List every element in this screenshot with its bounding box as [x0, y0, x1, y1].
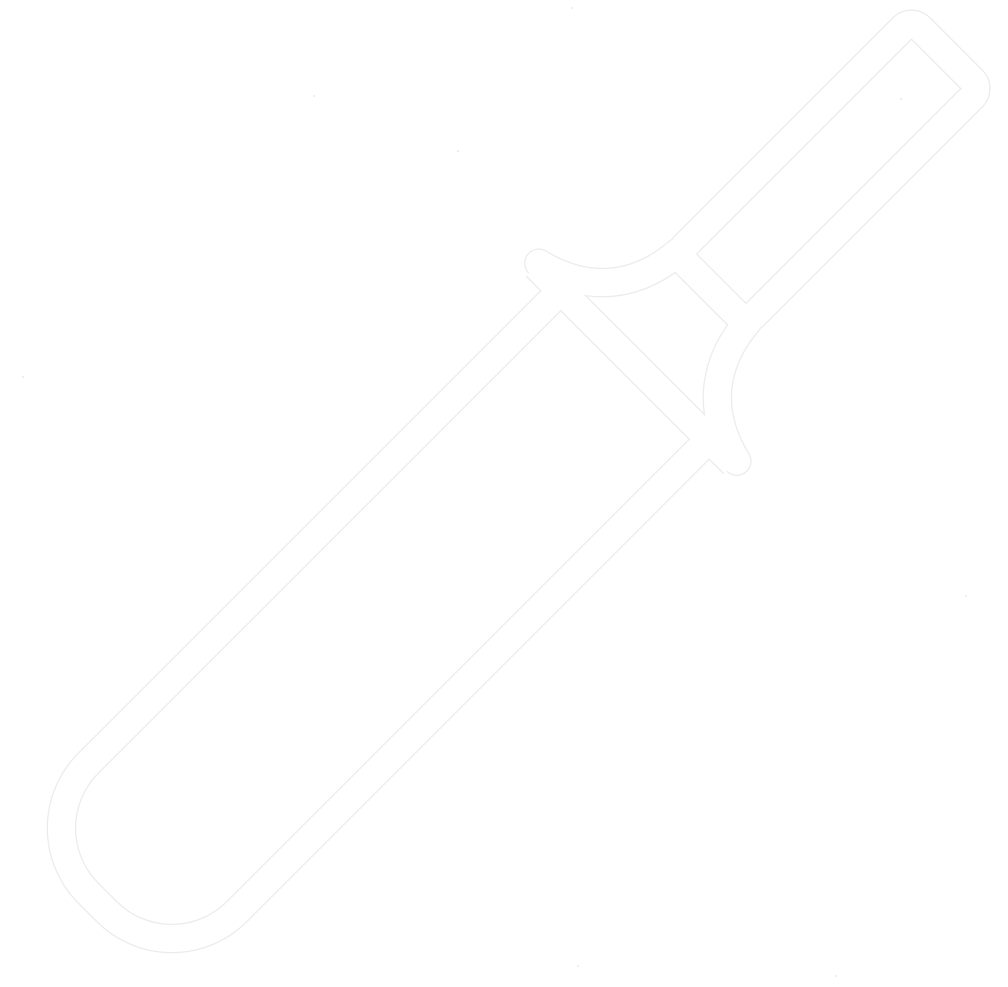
noise-speck	[22, 376, 24, 378]
noise-speck	[577, 965, 579, 967]
noise-speck	[571, 7, 573, 9]
bat-handle-outline	[677, 19, 981, 323]
bat-handle-outline	[677, 19, 981, 323]
cricket-bat-icon	[0, 0, 1008, 987]
noise-speck	[457, 150, 459, 152]
noise-speck	[900, 98, 902, 100]
noise-speck	[965, 595, 967, 597]
bat-blade-outline	[23, 287, 713, 977]
noise-speck	[313, 95, 315, 97]
canvas	[0, 0, 1008, 987]
cricket-bat-edge-underlay	[0, 0, 1008, 987]
cricket-bat-white-body	[0, 0, 1008, 987]
noise-speck	[835, 975, 837, 977]
bat-blade-outline	[23, 287, 713, 977]
